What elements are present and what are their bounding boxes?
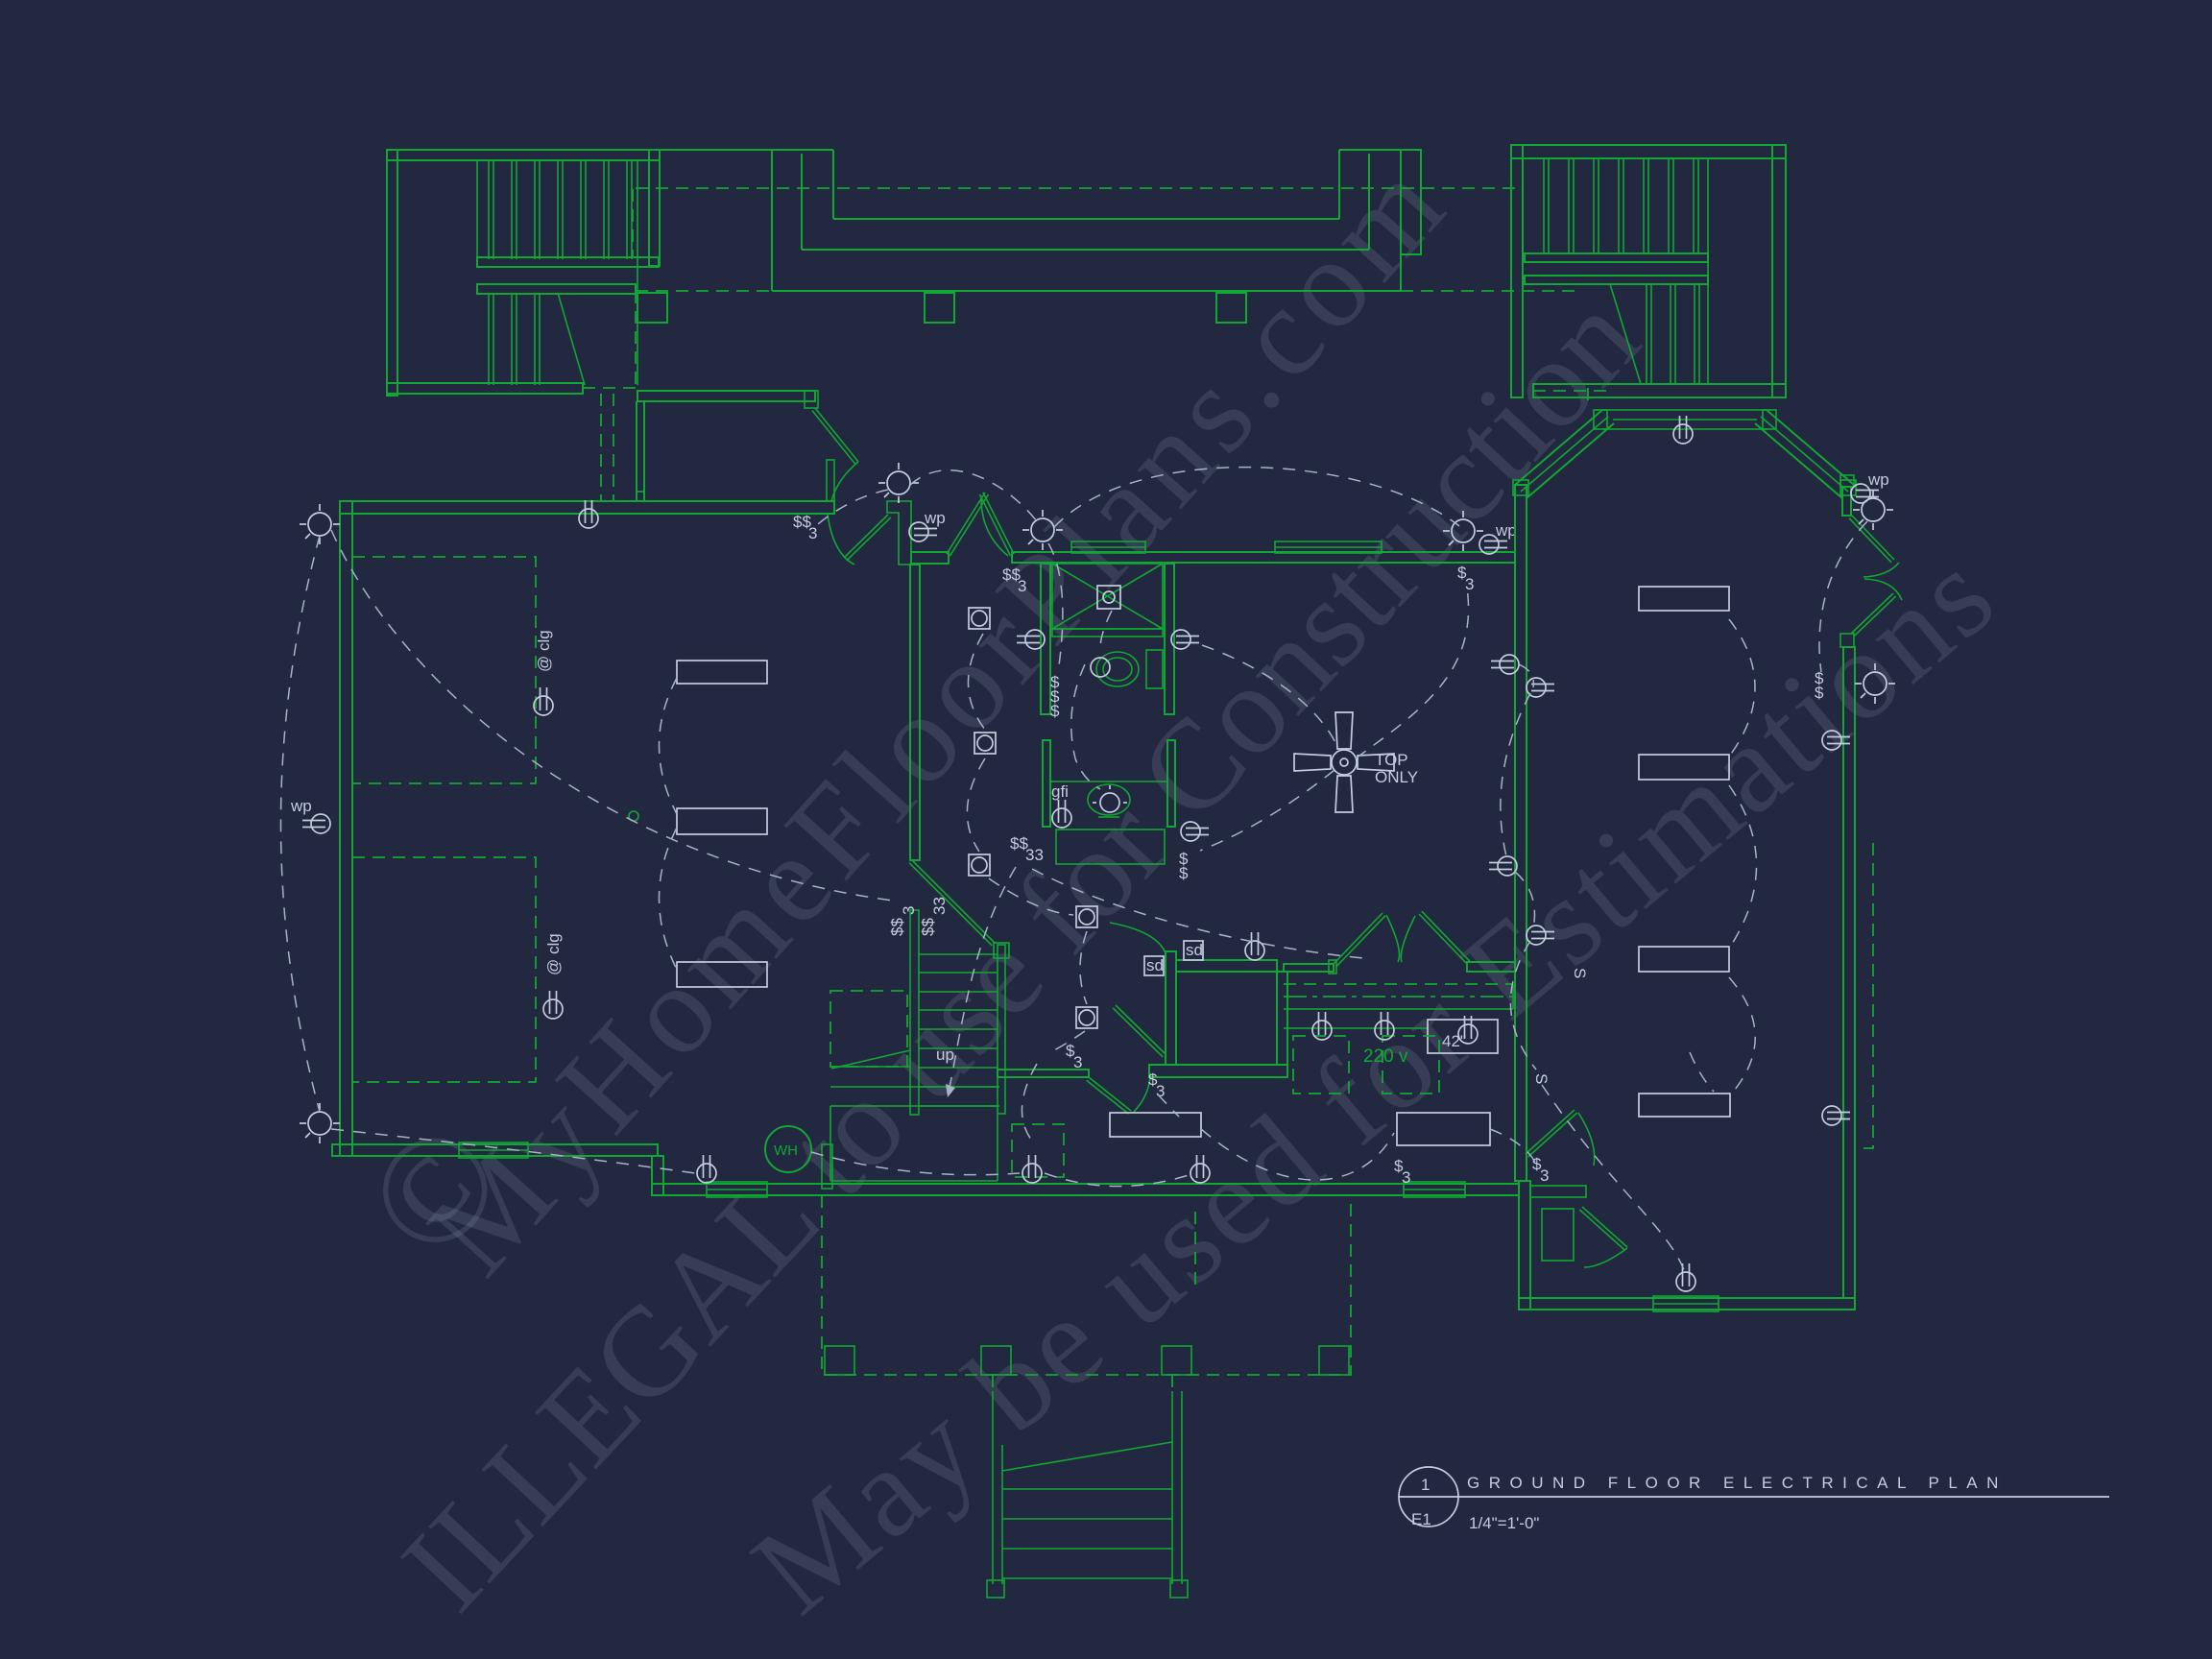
svg-text:$$: $$: [888, 918, 906, 936]
svg-text:3: 3: [1018, 577, 1026, 595]
svg-text:@ clg: @ clg: [544, 933, 563, 975]
svg-text:3: 3: [1540, 1166, 1549, 1185]
svg-text:wp: wp: [1495, 521, 1517, 540]
svg-text:GROUND FLOOR ELECTRICAL PLAN: GROUND FLOOR ELECTRICAL PLAN: [1467, 1474, 2008, 1492]
svg-text:@ clg: @ clg: [535, 630, 553, 672]
svg-text:$: $: [1179, 864, 1189, 882]
svg-text:220 v: 220 v: [1363, 1046, 1408, 1067]
svg-text:E1: E1: [1411, 1510, 1431, 1528]
svg-text:1/4"=1'-0": 1/4"=1'-0": [1469, 1514, 1539, 1532]
svg-text:33: 33: [1025, 846, 1044, 864]
svg-text:3: 3: [1465, 575, 1474, 593]
svg-text:up: up: [936, 1046, 954, 1064]
svg-text:33: 33: [930, 897, 949, 915]
svg-text:wp: wp: [1867, 470, 1889, 489]
svg-text:3: 3: [1073, 1053, 1082, 1071]
svg-text:$: $: [1050, 702, 1060, 720]
svg-text:TOP: TOP: [1375, 751, 1408, 769]
svg-text:wp: wp: [924, 509, 946, 527]
svg-text:gfi: gfi: [1051, 782, 1069, 801]
svg-text:3: 3: [1402, 1168, 1410, 1187]
svg-text:S: S: [1571, 968, 1589, 978]
svg-text:$$: $$: [919, 918, 937, 936]
svg-text:wp: wp: [290, 797, 312, 815]
svg-text:S: S: [1532, 1073, 1551, 1084]
svg-text:WH: WH: [774, 1142, 798, 1159]
svg-text:1: 1: [1421, 1476, 1430, 1494]
svg-text:sd: sd: [1186, 941, 1203, 959]
svg-text:3: 3: [900, 906, 918, 915]
svg-text:$: $: [1815, 684, 1824, 702]
svg-text:sd: sd: [1146, 956, 1164, 974]
svg-text:ONLY: ONLY: [1375, 768, 1418, 786]
svg-text:3: 3: [808, 524, 817, 542]
